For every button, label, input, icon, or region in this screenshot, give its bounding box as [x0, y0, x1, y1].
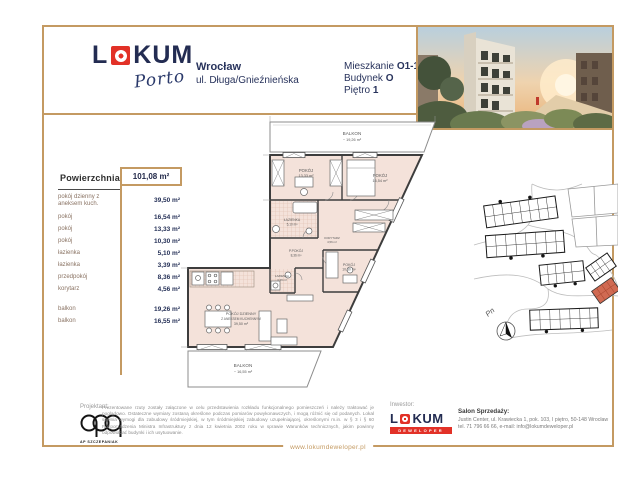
balcony-bottom [188, 351, 321, 387]
table-row: pokój dzienny z aneksem kuch.39,50 m² [58, 190, 182, 211]
building-block [539, 261, 585, 289]
porto-script: Porto [133, 65, 194, 92]
room-label: P.POKÓJ [289, 248, 304, 253]
investor-label: Inwestor: [390, 402, 414, 408]
document-frame: L KUM Porto Wrocław ul. Długa/Gnieźnieńs… [42, 25, 614, 447]
deweloper-bar: DEWELOPER [390, 427, 452, 434]
floor-plan: BALKON ~ 19,26 m² POKÓJ 13,33 m² POKÓJ 1… [175, 115, 465, 405]
site-plan: Pn [470, 183, 618, 353]
lokum-o-icon [111, 46, 130, 65]
area-table-title: Powierzchnia [60, 173, 120, 183]
legal-disclaimer: Prezentowane rzuty zostały załączone w c… [102, 405, 374, 436]
room-area: 8,36 m² [291, 254, 302, 258]
table-row: balkon19,26 m² [58, 303, 182, 315]
compass: Pn [484, 306, 515, 340]
parcel-outlines [568, 184, 618, 247]
logo-letters: KUM [133, 43, 193, 68]
balcony-top-area: ~ 19,26 m² [343, 138, 362, 142]
flyer-page: L KUM Porto Wrocław ul. Długa/Gnieźnieńs… [0, 0, 640, 480]
city-name: Wrocław [196, 61, 299, 74]
compass-label: Pn [484, 306, 497, 319]
table-row: przedpokój8,36 m² [58, 271, 182, 283]
balcony-top [270, 122, 435, 152]
balcony-top-label: BALKON [343, 131, 362, 136]
table-row: pokój10,30 m² [58, 235, 182, 247]
lokum-o-icon [400, 414, 410, 424]
sales-office-info: Salon Sprzedaży: Justin Center, ul. Kraw… [458, 408, 640, 431]
building-block [586, 253, 616, 281]
sales-office-contact: tel. 71 796 66 66, e-mail: info@lokumdew… [458, 424, 640, 431]
table-row: balkon16,55 m² [58, 315, 182, 327]
area-table: pokój dzienny z aneksem kuch.39,50 m² po… [58, 190, 182, 327]
room-area: 10,30 m² [342, 268, 356, 272]
room-label2: Z ANEKSEM KUCHENNYM [221, 317, 261, 321]
sales-office-address: Justin Center, ul. Krawiecka 1, pok. 103… [458, 417, 640, 424]
room-label: POKÓJ [299, 168, 313, 173]
sales-office-title: Salon Sprzedaży: [458, 408, 640, 415]
table-row: pokój13,33 m² [58, 223, 182, 235]
room-label: POKÓJ [373, 173, 387, 178]
room-area: 39,50 m² [234, 322, 249, 326]
table-row: łazienka3,39 m² [58, 259, 182, 271]
room-area: 4,56 m² [327, 240, 337, 244]
table-row: łazienka5,10 m² [58, 247, 182, 259]
floor-number: 1 [373, 85, 379, 96]
building-block [530, 308, 599, 334]
table-row: pokój16,54 m² [58, 211, 182, 223]
building-block [485, 230, 565, 261]
website-url: www.lokumdeweloper.pl [283, 444, 373, 451]
room-area: 13,33 m² [299, 174, 315, 178]
room-label: POKÓJ [343, 262, 355, 267]
designer-name: AP SZCZEPANIAK [80, 440, 118, 444]
room-area: 3,39 m² [277, 278, 287, 282]
balcony-bottom-area: ~ 16,55 m² [234, 370, 253, 374]
room-label: ŁAZIENKA [284, 218, 301, 222]
table-row: korytarz4,56 m² [58, 283, 182, 295]
total-area-badge: 101,08 m² [120, 167, 182, 186]
building-letter: O [386, 73, 394, 84]
building-block [483, 193, 558, 228]
room-label: POKÓJ DZIENNY [226, 311, 257, 316]
room-area: 5,10 m² [287, 223, 298, 227]
room-area: 16,54 m² [373, 179, 389, 183]
lokum-deweloper-logo: L KUM DEWELOPER [390, 412, 456, 434]
logo-letter: L [92, 43, 108, 68]
balcony-bottom-label: BALKON [234, 363, 253, 368]
highlighted-building [592, 278, 618, 304]
lokum-porto-logo: L KUM Porto [92, 43, 193, 89]
street-name: ul. Długa/Gnieźnieńska [196, 74, 299, 87]
project-location: Wrocław ul. Długa/Gnieźnieńska [196, 61, 299, 87]
